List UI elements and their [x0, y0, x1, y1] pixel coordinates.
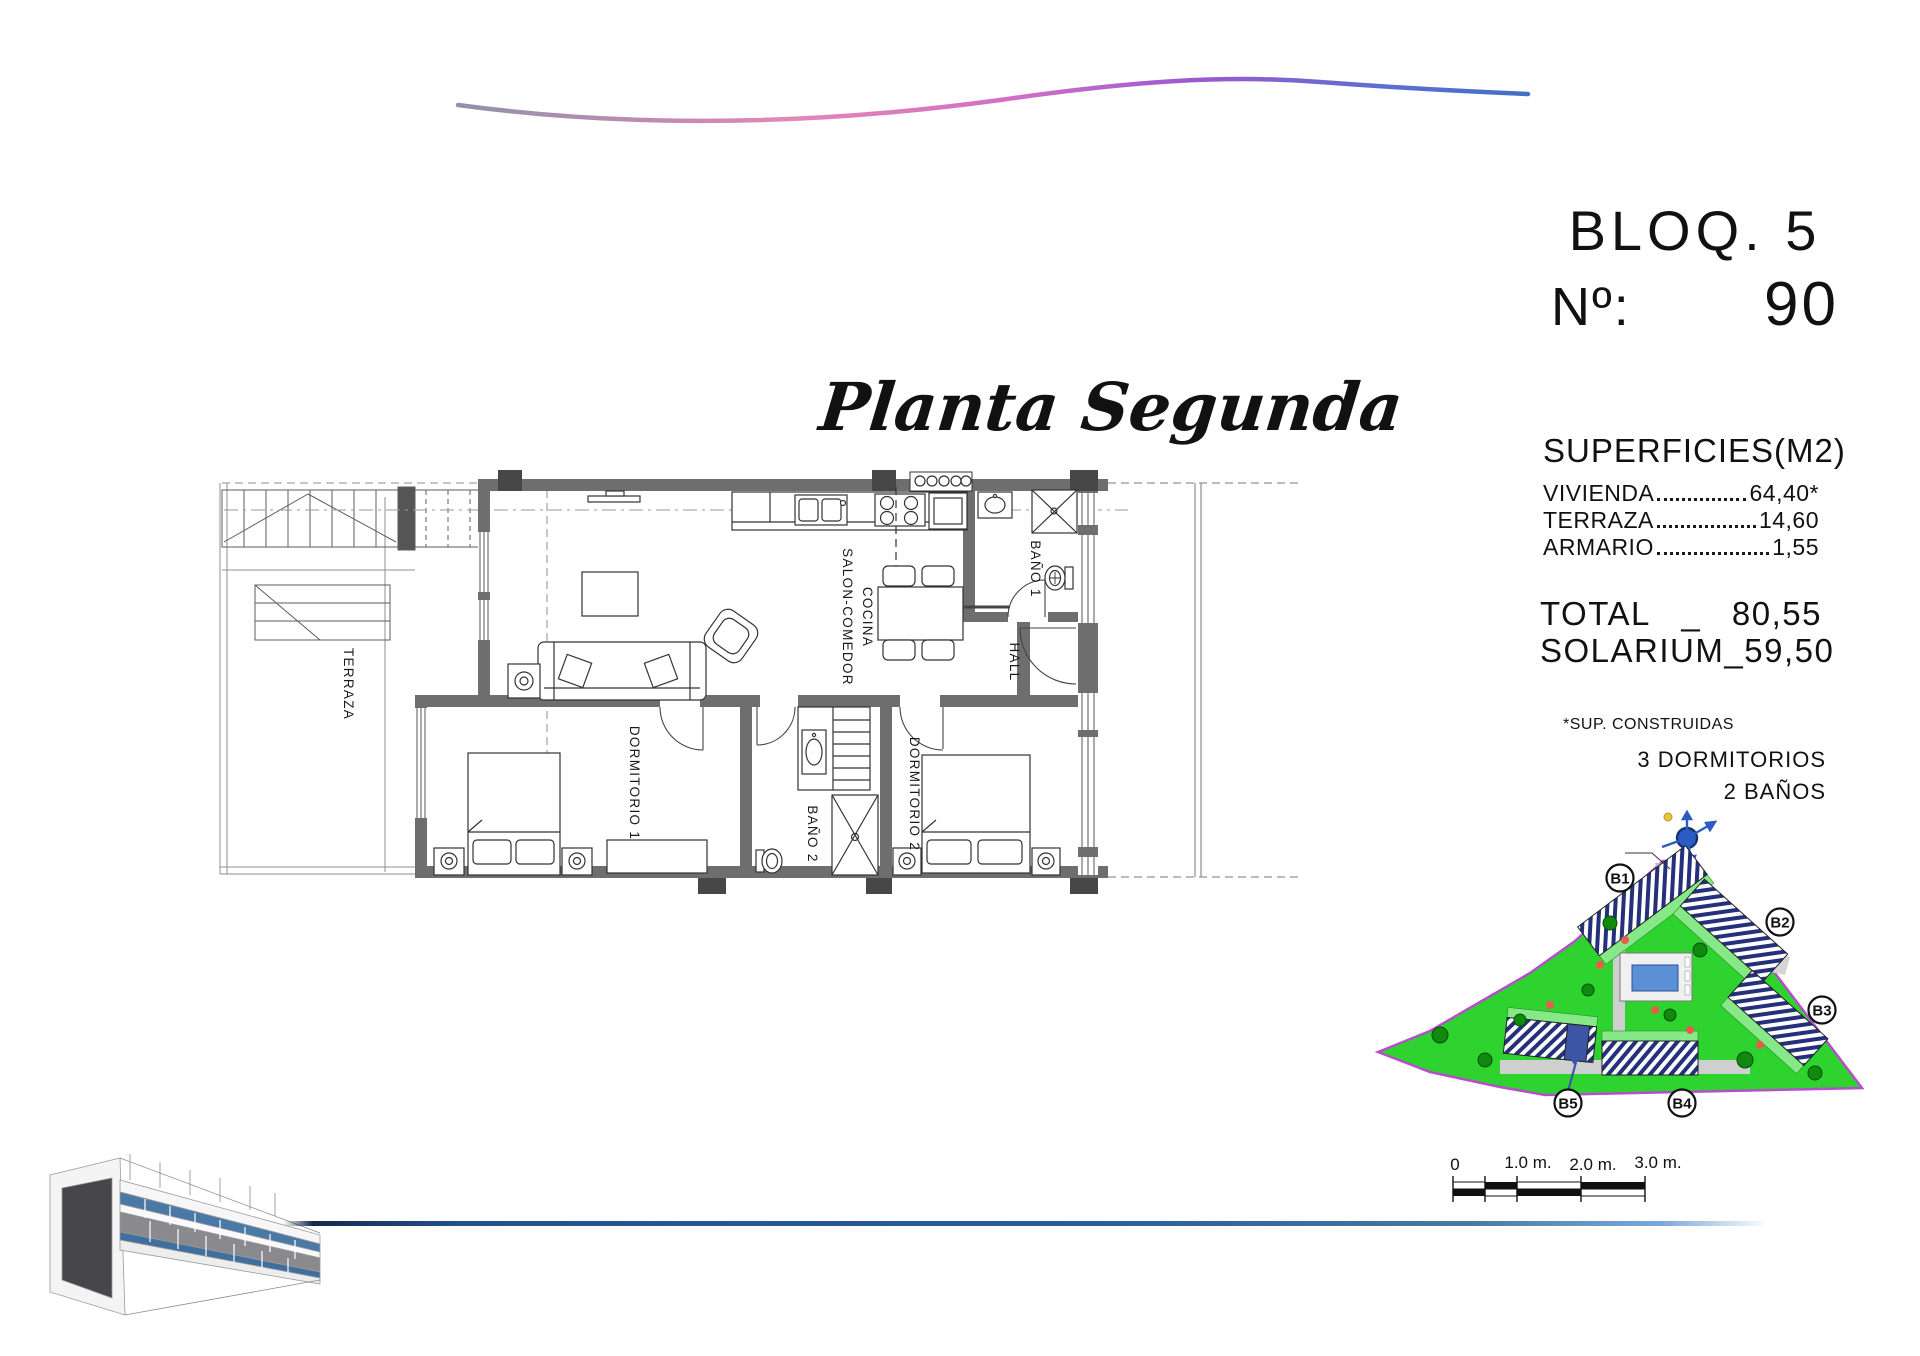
floor-title: Planta Segunda [816, 368, 1344, 446]
dotted-leader [1657, 498, 1746, 501]
surface-value: 64,40* [1749, 480, 1819, 507]
plan-sheet: BLOQ. 5 Nº: 90 Planta Segunda [0, 0, 1920, 1356]
lot-boundary-right [1108, 483, 1302, 877]
surfaces-title: SUPERFICIES(M2) [1543, 432, 1819, 470]
block-label-b2: B2 [1770, 915, 1789, 932]
total-value: 80,55 [1732, 595, 1822, 632]
room-label-dormitorio2: DORMITORIO 2 [907, 737, 922, 851]
surface-value: 14,60 [1759, 507, 1819, 534]
scale-segments [1453, 1176, 1645, 1202]
total-label: TOTAL [1540, 595, 1651, 632]
surface-label: VIVIENDA [1543, 480, 1654, 507]
room-label-hall: HALL [1007, 643, 1022, 682]
block-label-b4: B4 [1672, 1096, 1692, 1113]
room-label-bano2: BAÑO 2 [805, 805, 820, 862]
solarium-row: SOLARIUM _ 59,50 [1540, 632, 1822, 669]
floor-plan: TERRAZA SALON-COMEDOR COCINA BAÑO 1 HALL… [210, 462, 1320, 912]
block-label: BLOQ. 5 [1545, 198, 1845, 263]
number-value: 90 [1764, 269, 1839, 340]
dotted-leader [1657, 525, 1756, 528]
number-label: Nº: [1551, 276, 1631, 338]
surface-label: ARMARIO [1543, 534, 1654, 561]
scale-label-0: 0 [1450, 1155, 1459, 1174]
building-render [20, 1140, 330, 1355]
block-header: BLOQ. 5 Nº: 90 [1545, 198, 1845, 340]
dotted-leader [1657, 552, 1769, 555]
pool-area [1620, 953, 1692, 1001]
solarium-value: 59,50 [1744, 632, 1834, 669]
scale-label-1: 1.0 m. [1504, 1153, 1551, 1172]
surface-row: ARMARIO 1,55 [1543, 534, 1819, 561]
surfaces-block: SUPERFICIES(M2) VIVIENDA 64,40* TERRAZA … [1543, 432, 1819, 561]
surface-value: 1,55 [1772, 534, 1819, 561]
building-b4 [1602, 1031, 1698, 1075]
scale-label-2: 2.0 m. [1569, 1155, 1616, 1174]
surface-row: TERRAZA 14,60 [1543, 507, 1819, 534]
total-row: TOTAL _ 80,55 [1540, 595, 1822, 632]
block-label-b5: B5 [1558, 1096, 1577, 1113]
total-separator: _ [1681, 595, 1701, 632]
solarium-separator: _ [1724, 632, 1744, 669]
site-plan: B1 B2 B3 B4 B5 [1370, 845, 1875, 1150]
block-label-b1: B1 [1610, 871, 1629, 888]
bathroom1-fixtures [978, 490, 1077, 590]
room-label-salon-2: COCINA [860, 587, 875, 647]
room-label-bano1: BAÑO 1 [1028, 540, 1043, 597]
scale-label-3: 3.0 m. [1634, 1153, 1681, 1172]
block-label-b3: B3 [1812, 1003, 1831, 1020]
room-label-terraza: TERRAZA [341, 648, 356, 720]
decorative-wave [440, 48, 1550, 148]
living-room-furniture [508, 491, 762, 700]
scale-bar: 0 1.0 m. 2.0 m. 3.0 m. [1440, 1152, 1720, 1212]
totals-block: TOTAL _ 80,55 SOLARIUM _ 59,50 [1540, 595, 1822, 669]
surfaces-footnote: *SUP. CONSTRUIDAS [1563, 716, 1734, 734]
surface-label: TERRAZA [1543, 507, 1654, 534]
room-label-salon-1: SALON-COMEDOR [840, 548, 855, 686]
room-label-dormitorio1: DORMITORIO 1 [627, 726, 642, 840]
bedrooms-count: 3 DORMITORIOS [1560, 744, 1826, 776]
rooms-count: 3 DORMITORIOS 2 BAÑOS [1560, 744, 1826, 808]
divider-line [283, 1221, 1763, 1226]
surface-row: VIVIENDA 64,40* [1543, 480, 1819, 507]
solarium-label: SOLARIUM [1540, 632, 1724, 669]
bedroom1-furniture [434, 753, 707, 875]
